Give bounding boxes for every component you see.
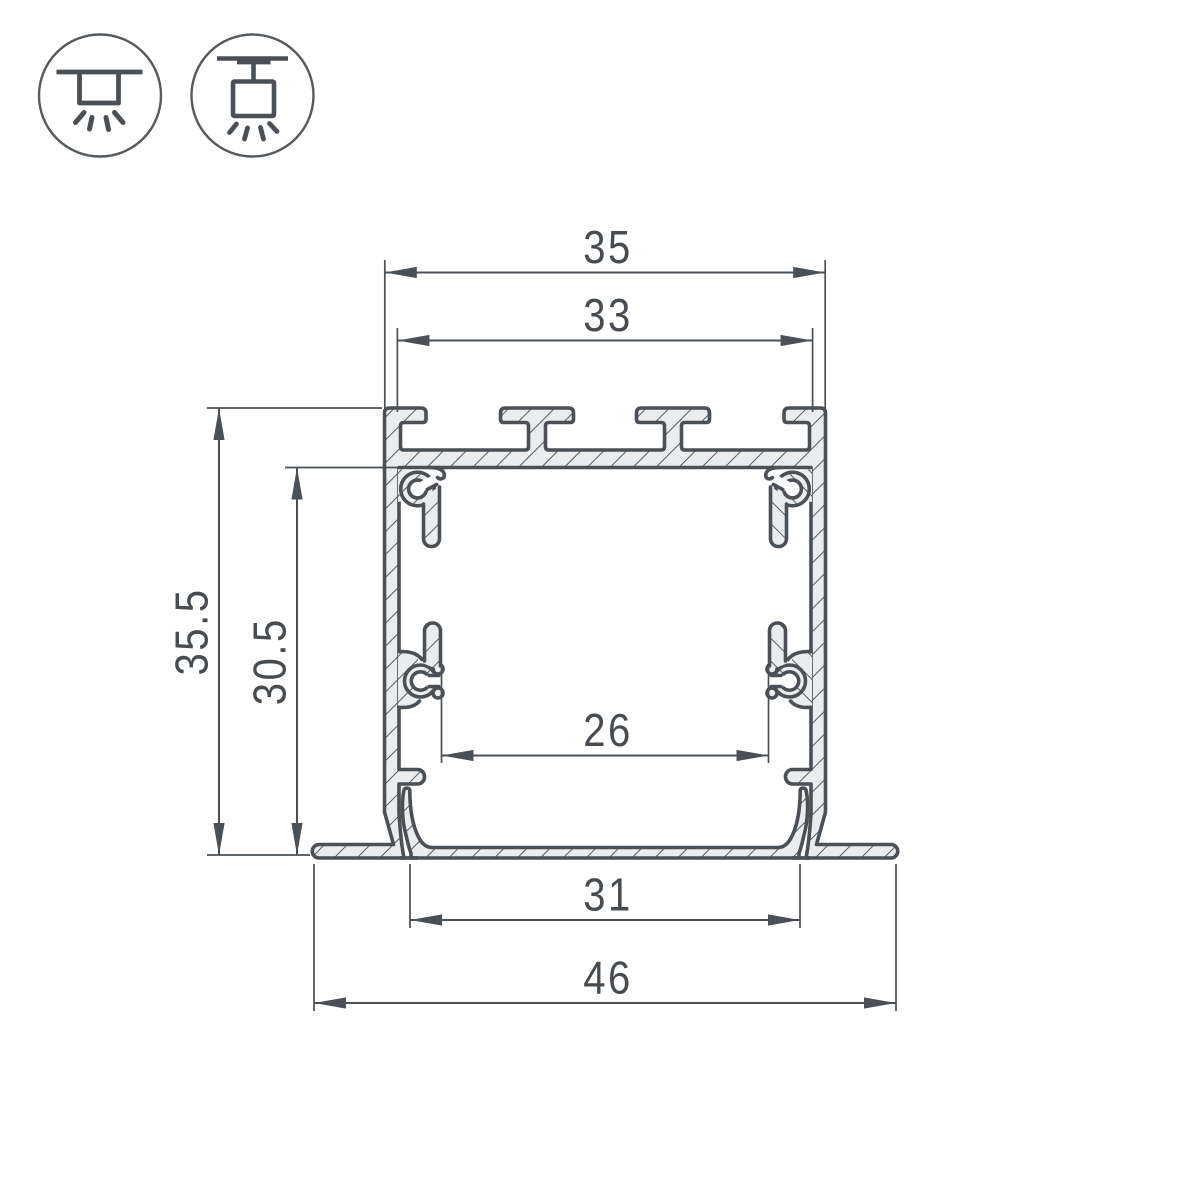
svg-text:46: 46 xyxy=(583,953,633,1004)
svg-text:33: 33 xyxy=(583,290,633,341)
svg-text:35.5: 35.5 xyxy=(167,588,218,676)
svg-text:30.5: 30.5 xyxy=(245,617,296,705)
svg-text:35: 35 xyxy=(583,222,633,273)
svg-text:26: 26 xyxy=(583,705,633,756)
svg-text:31: 31 xyxy=(583,870,633,921)
